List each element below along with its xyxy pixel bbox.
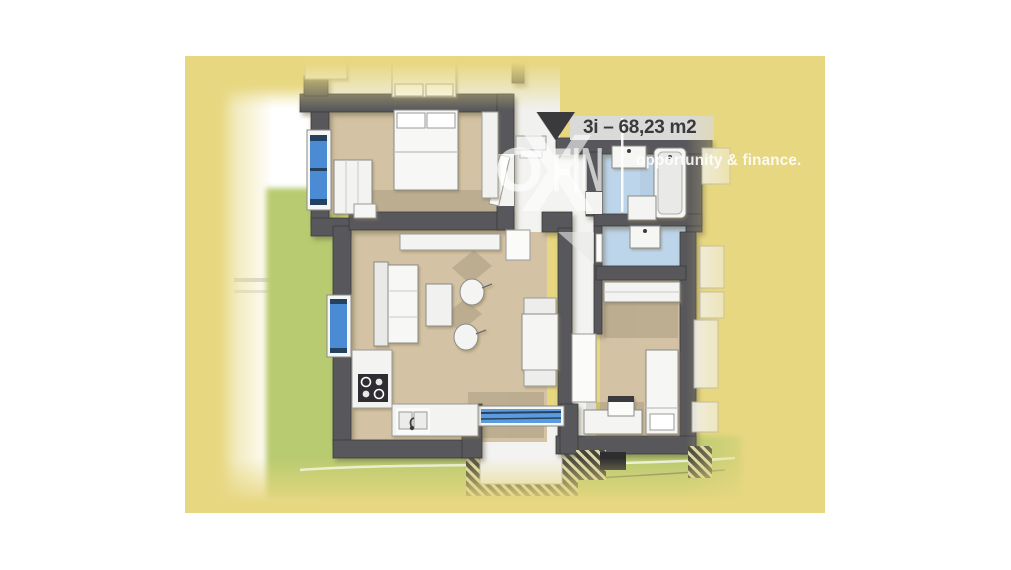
watermark-letters-fin: FIN <box>552 140 604 202</box>
balcony-glass-door <box>478 406 564 426</box>
sofa <box>374 262 418 346</box>
dining-set <box>522 298 558 386</box>
double-bed <box>394 110 458 190</box>
watermark-tagline: opportunity & finance. <box>636 153 801 169</box>
floorplan-page: 3i – 68,23 m2 O X FIN opportunity & fina… <box>0 0 1011 570</box>
wc-door-leaf <box>596 234 602 262</box>
armchair-2 <box>454 324 478 350</box>
wall-wc-bedroom2-divider <box>596 266 686 280</box>
sideboard-shelf <box>400 234 500 250</box>
stove <box>358 374 388 402</box>
wall-bottom-kitchen <box>333 440 469 458</box>
bedside-table <box>354 204 376 218</box>
bedroom2-door-leaf <box>572 334 596 402</box>
armchair-1 <box>460 279 484 305</box>
dining-table <box>522 314 558 370</box>
coffee-table <box>426 284 452 326</box>
window-livingroom <box>327 295 351 357</box>
single-bed <box>646 350 678 434</box>
exterior-steps-right <box>688 446 712 478</box>
kitchen-sink <box>396 408 430 434</box>
dining-chair-top <box>524 298 556 314</box>
dining-chair-bottom <box>524 370 556 386</box>
laptop <box>608 396 634 402</box>
exterior-unit <box>600 452 626 470</box>
desk-chair <box>608 400 634 416</box>
washing-machine <box>628 196 656 220</box>
apartment-floorplan-drawing <box>0 0 1011 570</box>
wc-sink <box>630 226 660 248</box>
window-bedroom1 <box>307 130 331 210</box>
wardrobe-bedroom2 <box>604 282 680 302</box>
